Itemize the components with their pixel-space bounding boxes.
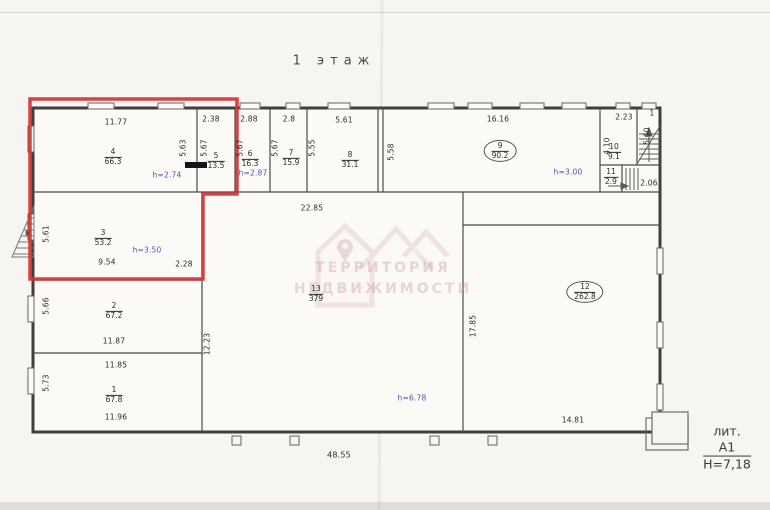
stair-flight-number: 1 bbox=[650, 109, 655, 118]
dim-stairs-height: 5.60 bbox=[643, 127, 652, 145]
dim-room3-height: 5.61 bbox=[42, 225, 51, 243]
dim-room7-height: 5.67 bbox=[271, 139, 280, 157]
dim-left-total: 12.23 bbox=[203, 333, 212, 355]
room-label-7: 715.9 bbox=[283, 149, 300, 167]
dim-room1-height: 5.73 bbox=[42, 374, 51, 392]
dim-room6-width: 2.88 bbox=[240, 115, 258, 124]
height-room9: h=3.00 bbox=[554, 168, 583, 177]
litera-label: лит. А1 bbox=[703, 424, 751, 457]
dim-room5-height: 5.67 bbox=[200, 139, 209, 157]
building-height-label: Н=7,18 bbox=[703, 457, 751, 472]
dim-room4-height: 5.63 bbox=[179, 139, 188, 157]
dim-room12-height: 17.85 bbox=[469, 315, 478, 337]
scanned-floor-plan-page: 1 этаж ТЕРРИТОРИЯ НЕДВИЖИМОСТИ 167.8 267… bbox=[0, 0, 770, 510]
dim-room2-height: 5.66 bbox=[42, 297, 51, 315]
dim-hall-width: 22.85 bbox=[301, 204, 323, 213]
room-label-4: 466.3 bbox=[105, 148, 122, 166]
litera-block: лит. А1 Н=7,18 bbox=[703, 424, 751, 473]
dim-room10-width: 2.23 bbox=[615, 113, 633, 122]
dim-room3-adjacent: 2.28 bbox=[175, 260, 193, 269]
windows-bottom bbox=[232, 436, 497, 445]
dim-room9-width: 16.16 bbox=[487, 115, 509, 124]
dim-room7-width: 2.8 bbox=[283, 115, 296, 124]
dim-room10-height: 4.10 bbox=[603, 137, 612, 155]
room-label-5: 513.5 bbox=[208, 152, 225, 170]
windows-right bbox=[657, 248, 663, 410]
dim-room4-width: 11.77 bbox=[105, 118, 127, 127]
height-room3: h=3.50 bbox=[133, 246, 162, 255]
dim-room8-width: 5.61 bbox=[335, 116, 353, 125]
height-room4: h=2.74 bbox=[153, 171, 182, 180]
dim-room12-width: 14.81 bbox=[562, 416, 584, 425]
height-hall13: h=6.78 bbox=[398, 394, 427, 403]
door-marker bbox=[185, 162, 207, 168]
room-label-13: 13379 bbox=[309, 285, 323, 303]
dim-room5-width: 2.38 bbox=[202, 115, 220, 124]
room-label-1: 167.8 bbox=[106, 386, 123, 404]
height-room6: h=2.87 bbox=[239, 169, 268, 178]
room-label-11: 112.9 bbox=[604, 168, 618, 186]
dim-room8-height: 5.55 bbox=[308, 139, 317, 157]
dim-overall-width: 48.55 bbox=[327, 451, 351, 460]
room-label-3: 353.2 bbox=[95, 229, 112, 247]
room-label-9: 990.2 bbox=[484, 140, 517, 162]
dim-room3-width: 9.54 bbox=[98, 258, 116, 267]
dim-room1-width: 11.96 bbox=[105, 413, 127, 422]
dim-room2-width: 11.87 bbox=[103, 337, 125, 346]
dim-wall-height: 5.58 bbox=[387, 143, 396, 161]
dim-room6-height: 5.67 bbox=[236, 139, 245, 157]
dim-under-stairs: 2.06 bbox=[640, 179, 658, 188]
page-title: 1 этаж bbox=[293, 54, 376, 69]
room-label-2: 267.2 bbox=[106, 302, 123, 320]
room-label-8: 831.1 bbox=[342, 151, 359, 169]
floor-plan-drawing bbox=[0, 0, 770, 510]
dim-room1-width-top: 11.85 bbox=[105, 361, 127, 370]
watermark-line1: ТЕРРИТОРИЯ bbox=[315, 260, 451, 276]
porch-steps bbox=[646, 412, 688, 450]
